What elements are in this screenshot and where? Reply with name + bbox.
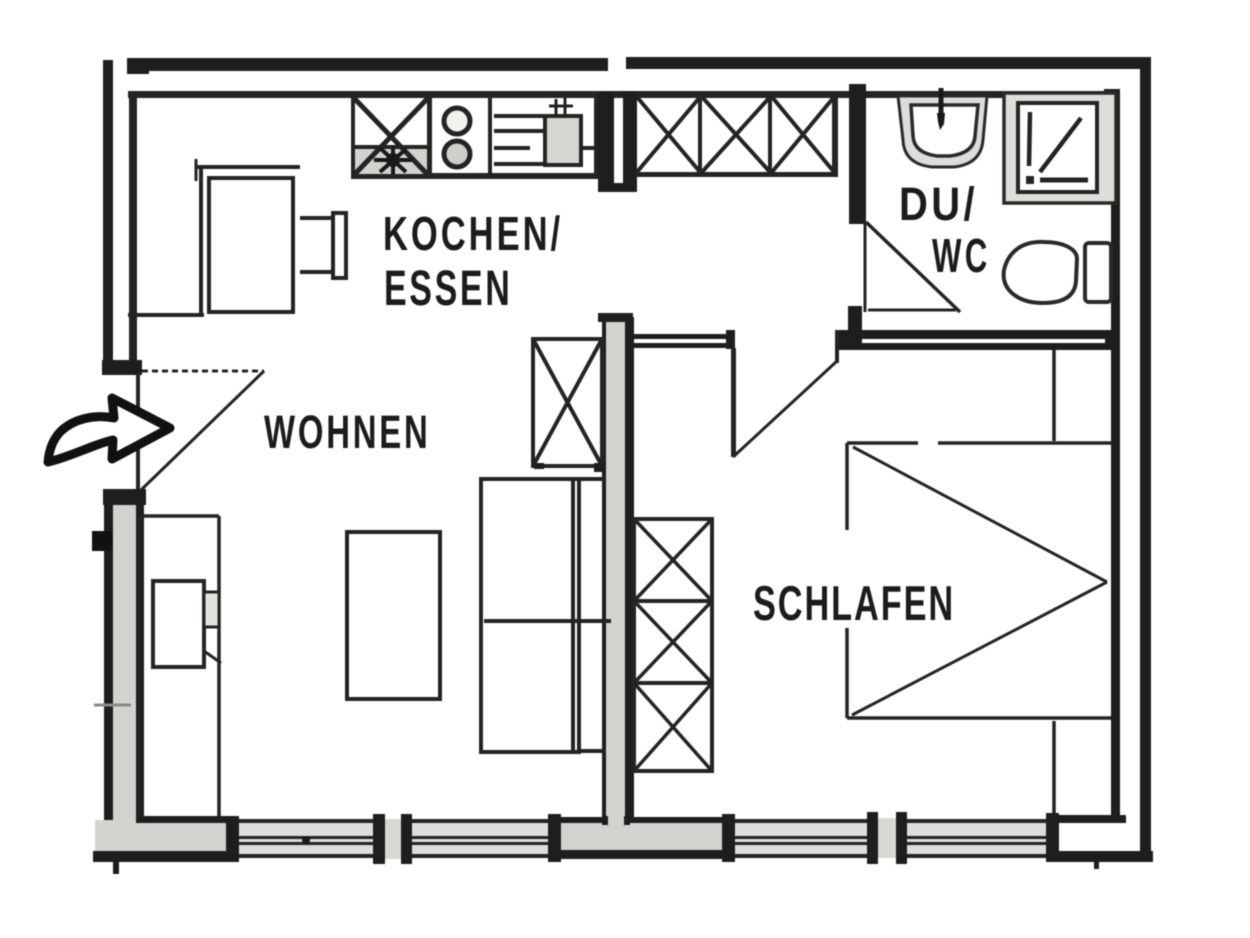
svg-text:DU/: DU/ [899, 177, 975, 230]
svg-text:ESSEN: ESSEN [384, 260, 510, 316]
svg-text:WC: WC [932, 230, 987, 283]
